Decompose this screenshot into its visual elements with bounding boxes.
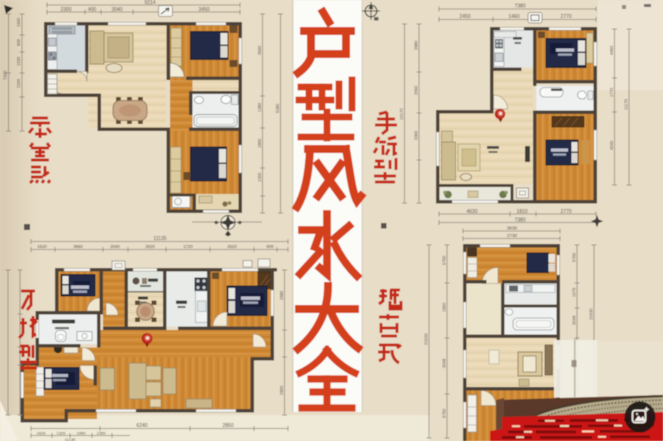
svg-text:11170: 11170 [624, 98, 629, 110]
svg-text:2900: 2900 [279, 385, 284, 395]
svg-text:2880: 2880 [414, 40, 419, 50]
svg-text:1500: 1500 [16, 17, 21, 27]
svg-text:2850: 2850 [222, 423, 233, 429]
svg-text:1770: 1770 [609, 87, 614, 97]
svg-text:1530: 1530 [16, 56, 21, 66]
svg-text:2450: 2450 [459, 14, 470, 20]
svg-text:3450: 3450 [198, 7, 209, 13]
svg-text:2300: 2300 [60, 7, 71, 13]
svg-text:7100: 7100 [3, 70, 8, 80]
svg-text:900: 900 [16, 38, 21, 46]
svg-text:1575: 1575 [572, 287, 577, 297]
svg-text:3040: 3040 [111, 7, 122, 13]
svg-text:3048: 3048 [572, 315, 577, 325]
svg-text:1620: 1620 [37, 244, 47, 249]
svg-text:9214: 9214 [144, 0, 155, 6]
svg-text:7380: 7380 [514, 218, 525, 224]
svg-text:400: 400 [88, 7, 97, 13]
svg-text:11135: 11135 [153, 236, 166, 242]
svg-text:1620: 1620 [37, 431, 47, 436]
svg-text:4460: 4460 [609, 45, 614, 55]
svg-text:3600: 3600 [257, 45, 262, 55]
svg-text:1200: 1200 [257, 172, 262, 182]
svg-text:900: 900 [266, 244, 274, 249]
svg-text:1320: 1320 [57, 431, 67, 436]
svg-text:2040: 2040 [110, 244, 120, 249]
svg-text:11135: 11135 [65, 437, 76, 441]
svg-text:1350: 1350 [97, 431, 107, 436]
svg-text:1720: 1720 [183, 244, 193, 249]
svg-text:2100: 2100 [16, 78, 21, 88]
svg-text:5280: 5280 [275, 103, 280, 113]
svg-text:2620: 2620 [227, 244, 237, 249]
svg-text:1950: 1950 [77, 431, 87, 436]
svg-text:1810: 1810 [516, 209, 527, 215]
svg-text:3660: 3660 [73, 244, 83, 249]
svg-text:21530: 21530 [424, 333, 429, 345]
svg-text:1380: 1380 [257, 102, 262, 112]
svg-text:2770: 2770 [560, 14, 571, 20]
svg-text:6240: 6240 [136, 423, 147, 429]
svg-text:21530: 21530 [589, 308, 594, 320]
svg-text:2770: 2770 [560, 209, 571, 215]
svg-text:4630: 4630 [466, 209, 477, 215]
svg-text:3300: 3300 [414, 130, 419, 140]
svg-text:3630: 3630 [507, 226, 518, 231]
svg-text:10170: 10170 [399, 108, 404, 120]
svg-text:3048: 3048 [442, 358, 447, 368]
svg-text:5700: 5700 [442, 255, 447, 265]
svg-text:2550: 2550 [414, 85, 419, 95]
svg-text:7380: 7380 [514, 4, 525, 10]
svg-text:4040: 4040 [609, 140, 614, 150]
svg-text:5750: 5750 [442, 408, 447, 418]
svg-text:1800: 1800 [257, 138, 262, 148]
svg-text:5700: 5700 [572, 252, 577, 262]
svg-text:2620: 2620 [145, 244, 155, 249]
svg-text:1460: 1460 [508, 14, 519, 20]
svg-text:2980: 2980 [279, 290, 284, 300]
svg-text:2730: 2730 [507, 233, 518, 238]
svg-text:1950: 1950 [442, 302, 447, 312]
